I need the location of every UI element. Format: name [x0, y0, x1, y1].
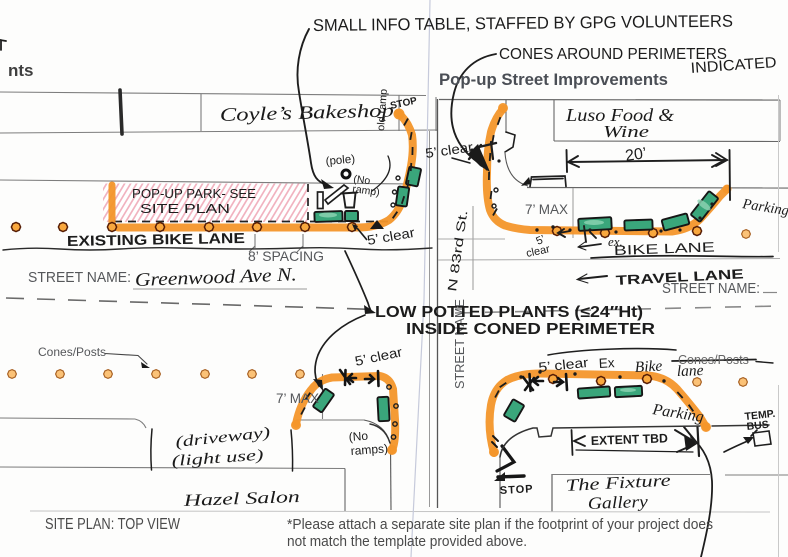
svg-text:BUS: BUS	[746, 419, 769, 433]
svg-text:STREET NAME:: STREET NAME:	[28, 270, 131, 286]
svg-text:Cones/Posts: Cones/Posts	[38, 345, 106, 359]
svg-text:STOP: STOP	[500, 483, 534, 497]
svg-text:POP-UP PARK- SEE: POP-UP PARK- SEE	[132, 186, 256, 201]
svg-text:(pole): (pole)	[325, 153, 356, 168]
svg-text:SITE PLAN: TOP VIEW: SITE PLAN: TOP VIEW	[45, 516, 180, 533]
svg-text:STREET NAME:: STREET NAME:	[662, 281, 760, 297]
svg-text:(No: (No	[348, 429, 369, 444]
svg-text:EXTENT TBD: EXTENT TBD	[591, 431, 668, 448]
svg-text:Ex: Ex	[598, 355, 615, 371]
svg-text:ramps): ramps)	[350, 441, 388, 458]
svg-text:nts: nts	[8, 61, 34, 80]
svg-text:LOW POTTED PLANTS (≤24″Ht): LOW POTTED PLANTS (≤24″Ht)	[375, 304, 643, 321]
svg-text:EXISTING BIKE LANE: EXISTING BIKE LANE	[67, 231, 246, 250]
svg-text:7’ MAX: 7’ MAX	[525, 202, 568, 217]
svg-text:*Please attach a separate site: *Please attach a separate site plan if t…	[287, 517, 713, 533]
svg-text:Bike: Bike	[634, 358, 663, 376]
svg-text:Gallery: Gallery	[587, 492, 648, 513]
svg-text:Pop-up Street Improvements: Pop-up Street Improvements	[439, 70, 668, 89]
svg-text:lane: lane	[677, 362, 704, 380]
svg-text:8’ SPACING: 8’ SPACING	[248, 249, 324, 264]
svg-text:Wine: Wine	[603, 122, 650, 141]
svg-text:20’: 20’	[624, 145, 648, 165]
svg-text:SITE PLAN: SITE PLAN	[140, 201, 230, 216]
svg-text:7’ MAX: 7’ MAX	[276, 391, 319, 406]
svg-text:not match the template provide: not match the template provided above.	[287, 534, 527, 550]
svg-text:INSIDE CONED PERIMETER: INSIDE CONED PERIMETER	[406, 321, 655, 338]
